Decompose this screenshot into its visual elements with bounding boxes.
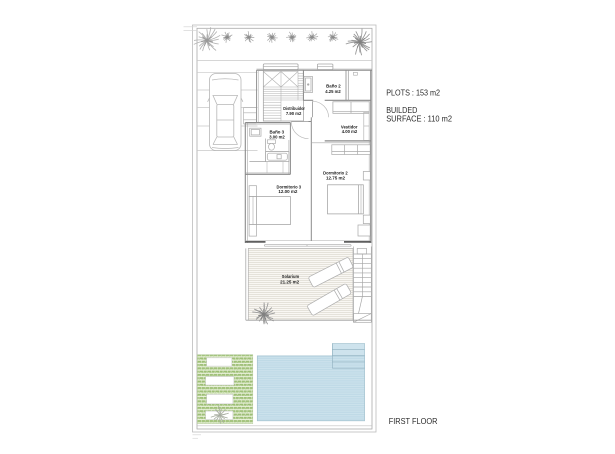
svg-text:12.00 m2: 12.00 m2 (278, 189, 298, 194)
svg-text:PLOTS : 153 m2: PLOTS : 153 m2 (386, 88, 440, 97)
svg-text:7.90 m2: 7.90 m2 (286, 111, 302, 116)
svg-text:SURFACE : 110 m2: SURFACE : 110 m2 (386, 114, 452, 123)
svg-text:21.25 m2: 21.25 m2 (280, 279, 300, 284)
svg-text:3.00 m2: 3.00 m2 (269, 134, 285, 139)
svg-text:4.00 m2: 4.00 m2 (342, 129, 358, 134)
svg-text:FIRST FLOOR: FIRST FLOOR (389, 416, 438, 426)
svg-text:12.75 m2: 12.75 m2 (326, 175, 346, 180)
svg-text:4.25 m2: 4.25 m2 (325, 89, 341, 94)
